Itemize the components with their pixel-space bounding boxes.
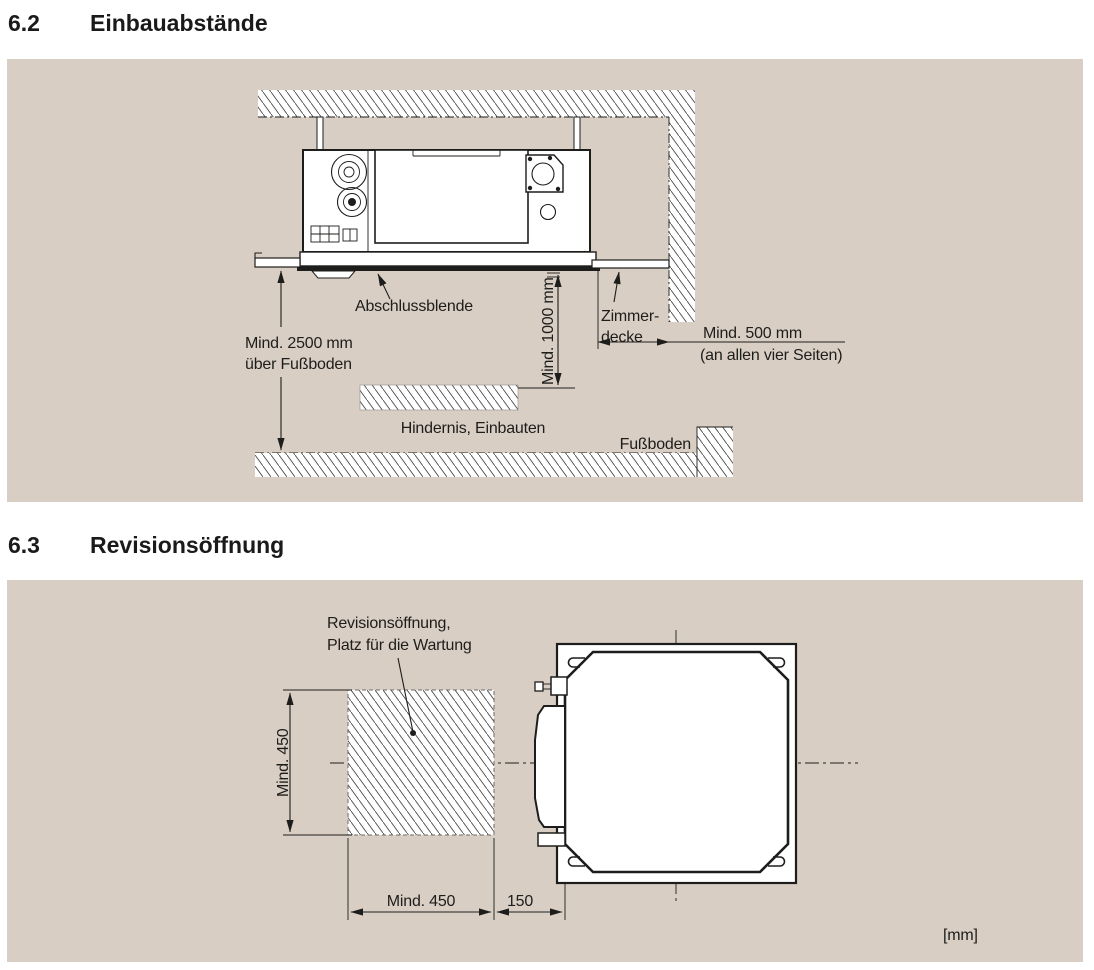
label-min-450-left: Mind. 450: [275, 728, 292, 797]
label-min-450-bottom: Mind. 450: [387, 893, 456, 910]
dimension-450-vertical: Mind. 450: [275, 690, 352, 835]
label-ueber-fussboden: über Fußboden: [245, 356, 352, 373]
label-revision-1: Revisionsöffnung,: [327, 615, 451, 632]
indoor-unit-side-view: [303, 150, 590, 252]
section-number: 6.2: [8, 10, 40, 37]
zimmerdecke-strip-left: [255, 253, 300, 267]
label-hindernis: Hindernis, Einbauten: [401, 420, 546, 437]
section-number: 6.3: [8, 532, 40, 559]
diagram-panel-revisionsoeffnung: Revisionsöffnung, Platz für die Wartung …: [7, 580, 1083, 962]
section-heading-einbauabstaende: 6.2 Einbauabstände: [0, 10, 1094, 40]
revision-diagram: Revisionsöffnung, Platz für die Wartung …: [7, 580, 1083, 962]
section-title: Revisionsöffnung: [90, 532, 284, 559]
drain-tab: [538, 833, 565, 846]
abschlussblende-panel: [297, 252, 600, 278]
connection-box: [535, 706, 565, 827]
label-zimmerdecke-2: decke: [601, 329, 643, 346]
revisionsoeffnung-hatch: [348, 690, 494, 835]
ceiling-slab-hatch: [258, 90, 695, 117]
abschlussblende-callout: Abschlussblende: [355, 274, 473, 315]
label-fussboden: Fußboden: [620, 436, 691, 453]
label-zimmerdecke-1: Zimmer-: [601, 308, 659, 325]
zimmerdecke-callout: Zimmer- decke: [601, 272, 659, 346]
label-units-mm: [mm]: [943, 927, 978, 944]
hindernis-hatch: [360, 385, 518, 410]
label-revision-2: Platz für die Wartung: [327, 637, 472, 654]
label-abschlussblende: Abschlussblende: [355, 298, 473, 315]
dimension-1000: Mind. 1000 mm: [518, 275, 575, 388]
label-min-500-note: (an allen vier Seiten): [700, 347, 842, 364]
indoor-unit-plan-view: [535, 644, 796, 883]
dimension-2500: Mind. 2500 mm über Fußboden: [245, 271, 353, 450]
section-title: Einbauabstände: [90, 10, 268, 37]
einbau-diagram: Mind. 2500 mm über Fußboden Mind. 1000 m…: [7, 59, 1083, 502]
pipe-fitting: [535, 677, 567, 695]
wall-hatch: [669, 90, 695, 322]
label-min-2500: Mind. 2500 mm: [245, 335, 353, 352]
manual-page: 6.2 Einbauabstände: [0, 0, 1094, 970]
dimension-450-bottom: Mind. 450 150: [348, 838, 565, 920]
label-min-1000: Mind. 1000 mm: [540, 277, 557, 385]
zimmerdecke-strip-right: [592, 260, 669, 268]
section-heading-revisionsoeffnung: 6.3 Revisionsöffnung: [0, 532, 1094, 562]
label-min-500: Mind. 500 mm: [703, 325, 802, 342]
diagram-panel-einbauabstaende: Mind. 2500 mm über Fußboden Mind. 1000 m…: [7, 59, 1083, 502]
label-150: 150: [507, 893, 533, 910]
